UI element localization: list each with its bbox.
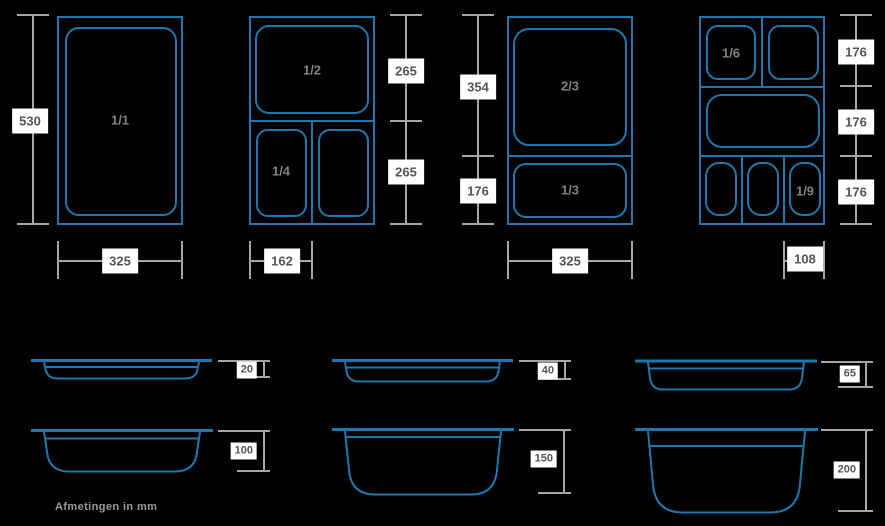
dimension-tick [249,241,251,279]
depth-dimension-label: 20 [237,362,257,379]
width-dimension-label: 325 [552,249,588,274]
pan-depth-150-profile [329,424,521,500]
depth-bracket-tick [838,386,873,388]
depth-bracket-line [563,429,565,494]
gastronorm-dimension-diagram: 1/1 530 325 1/2 1/4 265 265 162 2/3 1/3 … [0,0,885,526]
depth-dimension-label: 40 [538,363,558,380]
depth-bracket-tick [538,492,571,494]
depth-bracket-tick [237,470,270,472]
depth-dimension-label: 100 [231,443,257,460]
dimension-tick [631,241,633,279]
pan-depth-200-profile [632,424,824,516]
dimension-tick [840,14,872,16]
pan-depth-40-profile [329,356,521,388]
height-dimension-label: 176 [460,179,496,204]
dimension-tick [181,241,183,279]
gn-1-2-divider [311,120,313,225]
width-dimension-label: 325 [102,249,138,274]
pan-depth-65-profile [632,356,824,394]
units-note: Afmetingen in mm [55,501,157,513]
depth-bracket-line [865,361,867,388]
height-dimension-label: 176 [838,40,874,65]
depth-bracket-line [263,430,265,472]
height-dimension-label: 354 [460,75,496,100]
width-dimension-label: 162 [264,249,300,274]
gn-1-6-label: 1/6 [722,47,740,60]
gn-1-9-pan [705,162,737,216]
gn-1-2-label: 1/2 [303,64,321,77]
height-dimension-label: 176 [838,180,874,205]
gn-1-4-label: 1/4 [272,165,290,178]
dimension-tick [311,241,313,279]
depth-bracket-line [865,429,867,512]
depth-dimension-label: 200 [834,462,860,479]
depth-bracket-tick [838,510,873,512]
gn-1-1-label: 1/1 [111,114,129,127]
gn-1-6-divider [761,16,763,86]
pan-depth-100-profile [28,424,220,478]
gn-1-6-pan [768,25,819,80]
gn-1-6-divider [699,155,825,157]
gn-2-3-label: 2/3 [561,80,579,93]
height-dimension-label: 530 [12,109,48,134]
gn-1-6-divider [699,86,825,88]
gn-1-3-wide-pan [706,94,820,148]
dimension-tick [783,241,785,279]
dimension-tick [840,85,872,87]
gn-1-3-label: 1/3 [561,184,579,197]
dimension-tick [390,14,422,16]
dimension-tick [57,241,59,279]
depth-dimension-label: 150 [531,451,557,468]
gn-2-3-divider [507,155,633,157]
dimension-tick [840,223,872,225]
dimension-tick [462,223,494,225]
dimension-tick [17,223,49,225]
dimension-tick [507,241,509,279]
height-dimension-label: 265 [388,160,424,185]
gn-1-9-label: 1/9 [796,185,814,198]
dimension-tick [823,241,825,279]
gn-1-9-divider [783,155,785,225]
dimension-tick [17,14,49,16]
depth-dimension-label: 65 [840,366,860,383]
dimension-tick [390,120,422,122]
pan-depth-20-profile [28,356,220,386]
depth-bracket-line [564,360,566,380]
gn-1-9-pan [747,162,779,216]
height-dimension-label: 176 [838,110,874,135]
dimension-tick [462,14,494,16]
dimension-tick [462,155,494,157]
gn-1-4-pan [318,129,369,217]
dimension-tick [390,223,422,225]
width-dimension-label: 108 [787,247,823,272]
gn-1-9-divider [741,155,743,225]
height-dimension-label: 265 [388,59,424,84]
dimension-tick [840,155,872,157]
